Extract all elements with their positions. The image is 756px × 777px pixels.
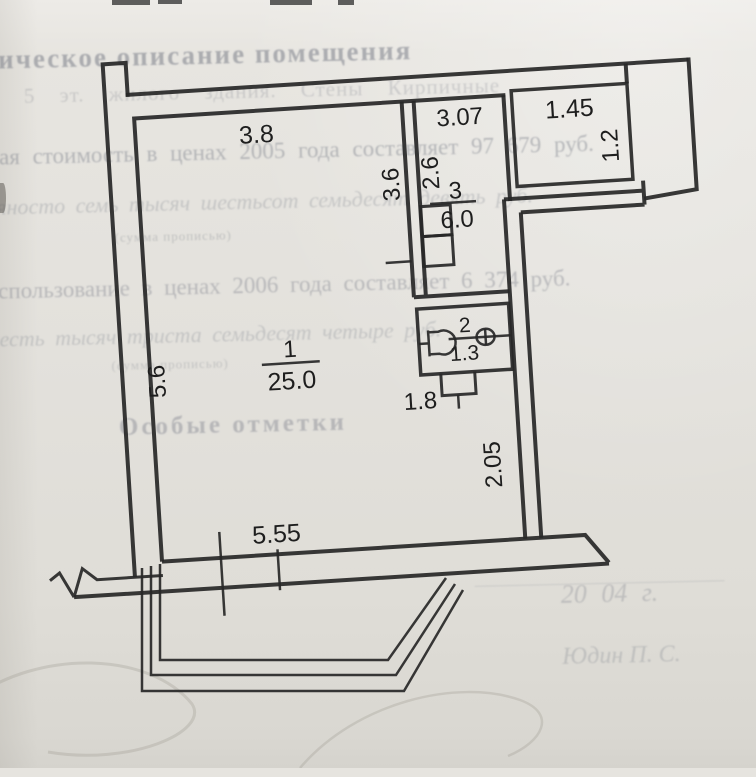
dim-room1-left-height: 5.6 [143, 364, 172, 399]
sink-line [449, 335, 511, 339]
window-axis-tick [219, 532, 224, 616]
outer-wall-top [126, 60, 689, 95]
bottom-wall [72, 534, 609, 598]
floor-plan-svg: 3.8 3.07 1.45 1.2 2.6 3.6 3 6.0 1 25.0 5… [0, 0, 756, 768]
hall-right-wall [503, 95, 510, 201]
paper-swirl-marks [0, 663, 542, 768]
room1-area: 25.0 [267, 366, 317, 397]
dim-top-width: 3.8 [238, 120, 274, 150]
balcony-top-connector [626, 63, 627, 83]
bath-door-tick [458, 395, 459, 409]
dim-bottom-width: 5.55 [251, 519, 301, 550]
closet-lower [422, 235, 454, 267]
room1-number: 1 [282, 336, 297, 364]
room3-number: 3 [448, 177, 463, 205]
dim-partition-height: 3.6 [377, 167, 406, 202]
dim-right-wall-lower: 2.05 [478, 440, 508, 488]
bathroom-door-stub [441, 372, 476, 396]
plan-group: 3.8 3.07 1.45 1.2 2.6 3.6 3 6.0 1 25.0 5… [18, 28, 722, 627]
balcony-parapet-outer [142, 568, 463, 691]
partition-dim-tick [386, 261, 412, 263]
outer-wall-right-upper [636, 58, 698, 199]
room2-number: 2 [458, 314, 471, 338]
dim-bath-width: 1.8 [403, 387, 438, 416]
dim-balcony-width: 1.45 [544, 94, 594, 125]
inner-wall-left-top [134, 95, 533, 561]
outer-wall-left-notch [103, 63, 158, 577]
sink-tap-tick [485, 329, 486, 345]
scanned-page: ническое описание помещения этаж 5 эт. ж… [0, 0, 756, 768]
dim-balcony-depth: 1.2 [596, 128, 625, 163]
top-edge-print-fragments [112, 0, 354, 5]
dim-hall-left-height: 2.6 [416, 155, 445, 190]
room2-area: 1.3 [449, 341, 480, 366]
room3-area: 6.0 [440, 205, 475, 234]
dim-hall-width: 3.07 [436, 103, 484, 133]
